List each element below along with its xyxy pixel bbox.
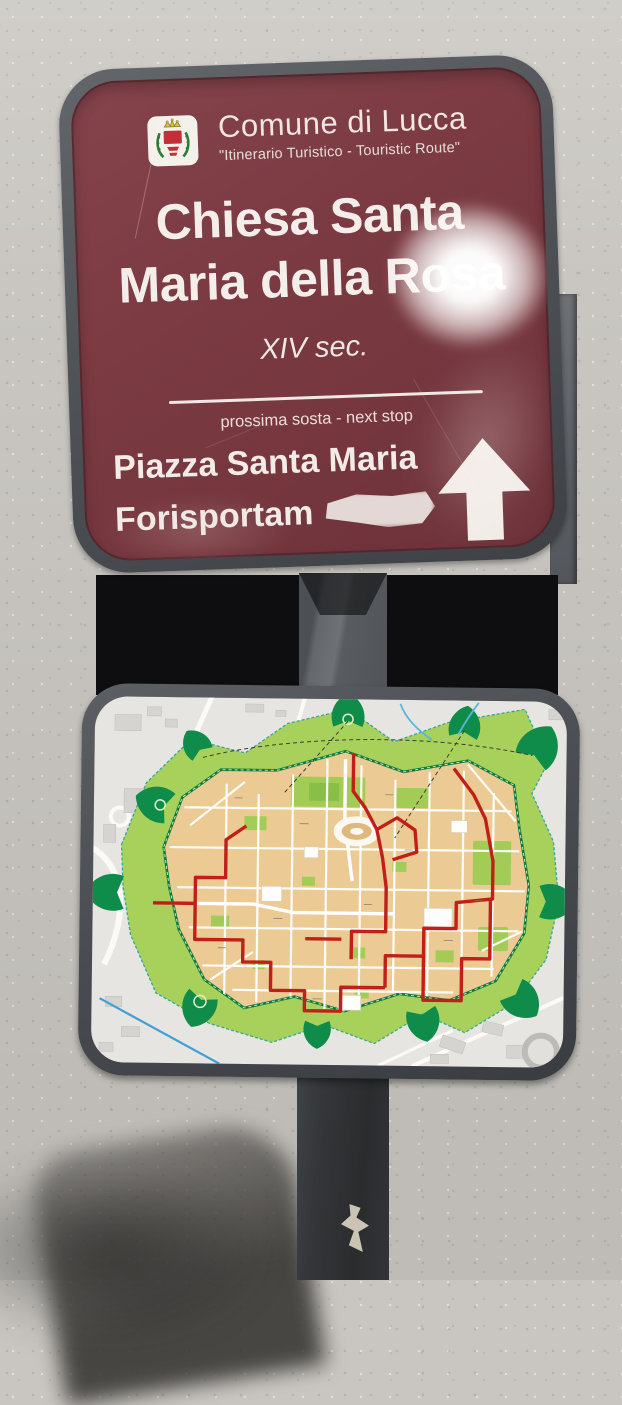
stadium-building [525,1035,558,1067]
header-text: Comune di Lucca "Itinerario Turistico - … [217,103,467,164]
sign-panel: Comune di Lucca "Itinerario Turistico - … [70,66,556,562]
lucca-city-map [91,696,567,1068]
municipality-name: Comune di Lucca [217,103,467,144]
lucca-coat-of-arms-icon [146,114,200,168]
sign-header: Comune di Lucca "Itinerario Turistico - … [71,100,543,170]
map-panel [91,696,567,1068]
city-map-sign [78,683,581,1081]
tourist-route-sign: Comune di Lucca "Itinerario Turistico - … [57,54,568,575]
pole-cap-facet [299,573,387,615]
worn-patch [102,493,294,562]
sign-pole-upper [299,573,387,697]
paint-chip-mark [341,1204,369,1252]
sign-pole-lower [297,1072,389,1280]
corner-shadow [0,1160,270,1340]
